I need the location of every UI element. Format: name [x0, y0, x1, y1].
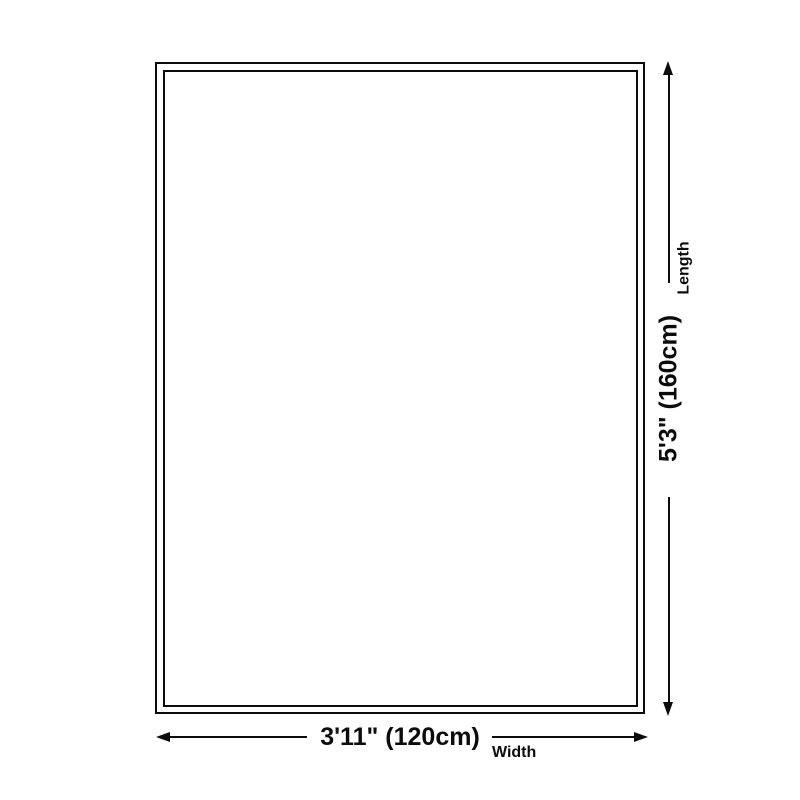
width-dimension-value: 3'11" (120cm): [300, 724, 500, 751]
width-dimension-line-left: [169, 736, 307, 739]
width-dimension-line-right: [492, 736, 634, 739]
arrow-down-icon: [663, 702, 673, 716]
length-dimension-line-upper: [668, 73, 671, 283]
item-inner-border: [163, 70, 638, 707]
width-axis-label: Width: [492, 744, 536, 762]
length-dimension-line-lower: [668, 497, 671, 703]
length-dimension-value: 5'3" (160cm): [656, 304, 683, 474]
size-diagram: Length 5'3" (160cm) 3'11" (120cm) Width: [0, 0, 800, 800]
arrow-right-icon: [634, 732, 648, 742]
arrow-left-icon: [156, 732, 170, 742]
length-axis-label: Length: [676, 238, 694, 299]
item-outline: [155, 62, 645, 714]
